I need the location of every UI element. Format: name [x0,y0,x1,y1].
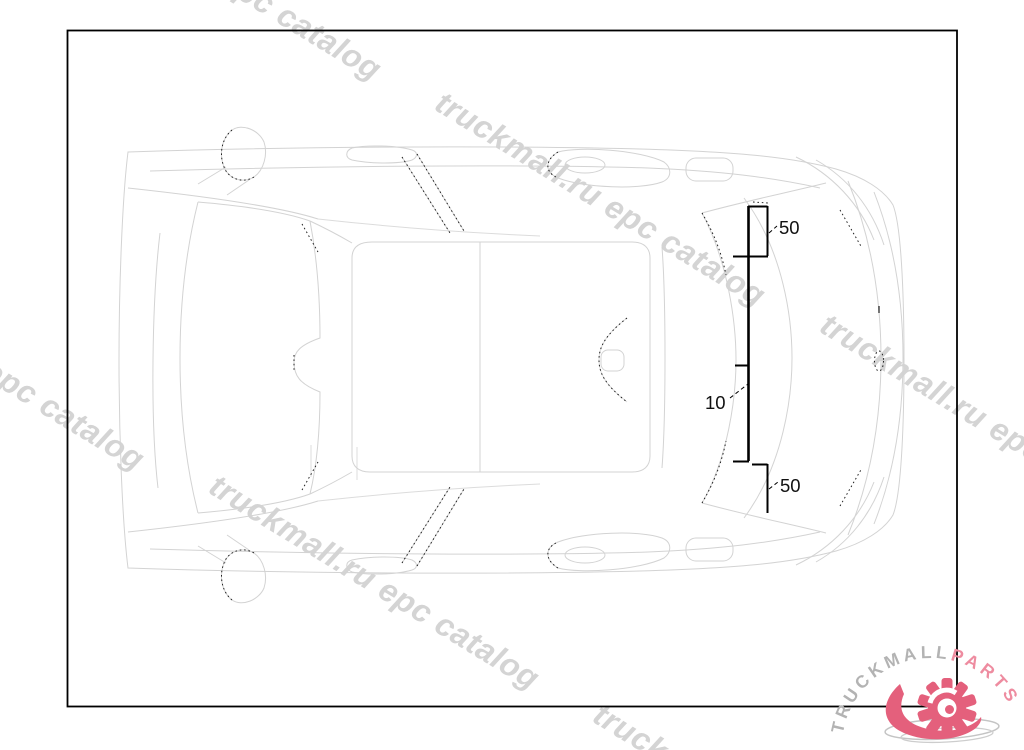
trunk-lock [875,351,884,371]
catalog-page: truckmall.ru epc catalog truckmall.ru ep… [0,0,1024,750]
brand-name: TRUCKMALLPARTS [827,642,1024,735]
car-top-view [119,127,904,603]
dimension-label-top: 50 [779,217,800,238]
dimension-label-middle: 10 [705,392,726,413]
border-frame [68,31,958,707]
side-mirror [198,535,266,603]
fuel-door [686,158,733,181]
technical-illustration: 50 10 50 [0,0,1024,750]
brand-logo: TRUCKMALLPARTS [827,642,1024,745]
side-mirror [198,127,266,195]
dimension-label-bottom: 50 [780,475,801,496]
